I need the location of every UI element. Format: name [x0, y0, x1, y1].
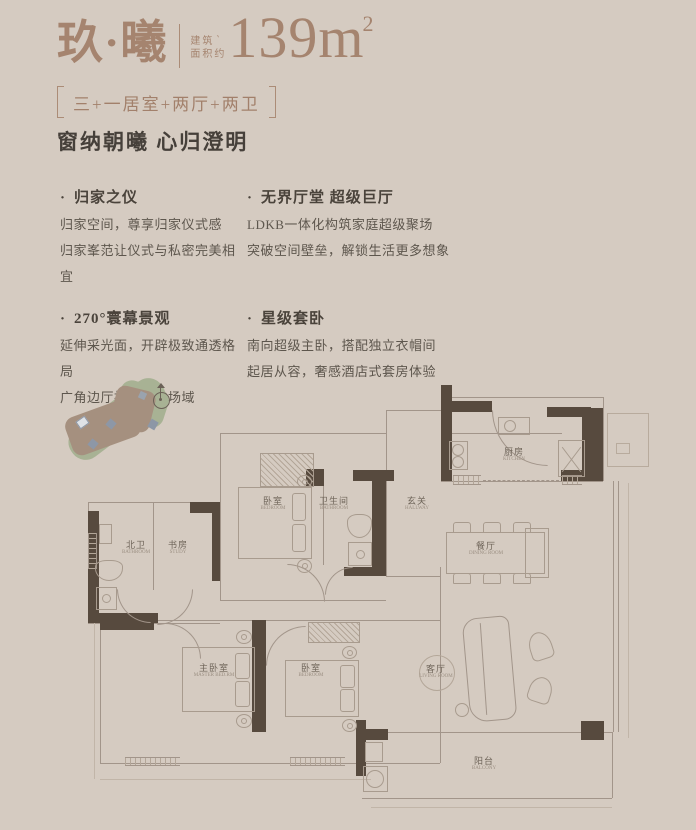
- wall-line: [612, 732, 613, 798]
- bullet-dot: ·: [60, 311, 66, 327]
- pillow: [292, 524, 306, 552]
- bullet-dot: ·: [247, 311, 253, 327]
- floor-plan: 厨房KITCHEN 玄关HALLWAY 卧室BEDROOM 卫生间BATHROO…: [85, 383, 660, 820]
- window-sill: [290, 757, 345, 766]
- armchair: [525, 629, 556, 663]
- title-divider: [179, 24, 180, 68]
- area-label-line2: 面积约: [190, 48, 226, 61]
- window-wall-outer: [628, 483, 629, 738]
- terrace-line: [371, 807, 612, 808]
- dining-chair: [453, 573, 471, 584]
- fridge-icon: [558, 440, 585, 477]
- feature-title: ·270°寰幕景观: [60, 307, 247, 328]
- brand-block: 玖·曦 建筑` 面积约 139m2: [57, 6, 376, 80]
- room-label-study: 书房STUDY: [153, 540, 203, 556]
- room-label-bedroom-top: 卧室BEDROOM: [248, 496, 298, 512]
- wall-dark: [366, 729, 388, 740]
- room-label-living: 客厅LIVING ROOM: [406, 664, 466, 680]
- bracket-left: [57, 86, 64, 118]
- area-superscript: 2: [362, 11, 374, 36]
- feature-line: 起居从容，奢感酒店式套房体验: [247, 359, 450, 385]
- wall-line: [603, 397, 604, 481]
- room-label-hallway: 玄关HALLWAY: [387, 496, 447, 512]
- wall-dark: [452, 401, 492, 412]
- room-label-balcony: 阳台BALCONY: [454, 756, 514, 772]
- dining-chair: [483, 522, 501, 533]
- feature-line: LDKB一体化构筑家庭超级聚场: [247, 212, 450, 238]
- wall-line: [220, 433, 386, 434]
- sink-icon: [96, 587, 117, 610]
- dining-sideboard: [525, 528, 549, 578]
- page-title: 玖·曦: [57, 13, 167, 73]
- room-label-kitchen: 厨房KITCHEN: [484, 447, 544, 463]
- layout-subtitle-text: 三+一居室+两厅+两卫: [64, 90, 269, 115]
- feature-line: 归家峯范让仪式与私密完美相宜: [60, 238, 247, 290]
- terrace-line: [94, 623, 95, 779]
- dining-chair: [483, 573, 501, 584]
- feature-line: 突破空间壁垒，解锁生活更多想象: [247, 238, 450, 264]
- kitchen-opening: [483, 480, 559, 481]
- armchair: [526, 674, 556, 706]
- bullet-dot: ·: [60, 190, 66, 206]
- washer-icon: [366, 770, 384, 788]
- wall-line: [441, 397, 603, 398]
- tick-mark: `: [214, 33, 223, 47]
- feature-title: ·无界厅堂 超级巨厅: [247, 186, 450, 207]
- room-label-bedroom2: 卧室BEDROOM: [281, 663, 341, 679]
- feature-line: 归家空间，尊享归家仪式感: [60, 212, 247, 238]
- area-value: 139m2: [228, 8, 376, 80]
- room-label-bathroom: 卫生间BATHROOM: [309, 496, 359, 512]
- door-arc-bathroom: [325, 567, 353, 595]
- wall-dark: [582, 408, 603, 470]
- nightstand-icon: [342, 646, 357, 659]
- window-wall: [613, 481, 614, 732]
- wall-line: [220, 433, 221, 600]
- area-label-line1: 建筑: [190, 36, 214, 47]
- feature-item-homecoming: ·归家之仪 归家空间，尊享归家仪式感 归家峯范让仪式与私密完美相宜: [60, 186, 247, 290]
- counter-line: [452, 433, 562, 434]
- wall-line: [386, 410, 442, 411]
- feature-title: ·归家之仪: [60, 186, 247, 207]
- bracket-right: [269, 86, 276, 118]
- wall-line: [100, 620, 101, 763]
- balcony-cabinet: [365, 742, 383, 762]
- nightstand-icon: [236, 714, 252, 728]
- ac-unit: [616, 443, 630, 454]
- feature-line: 南向超级主卧，搭配独立衣帽间: [247, 333, 450, 359]
- toilet-icon: [347, 514, 372, 538]
- wall-dark: [581, 721, 604, 740]
- ac-platform: [607, 413, 649, 467]
- nightstand-icon: [297, 559, 312, 573]
- room-label-dining: 餐厅DINING ROOM: [456, 541, 516, 557]
- tagline: 窗纳朝曦 心归澄明: [57, 126, 248, 156]
- room-label-master: 主卧室MASTER BED.RM: [184, 663, 244, 679]
- feature-title: ·星级套卧: [247, 307, 450, 328]
- wall-line: [386, 576, 440, 577]
- terrace-line: [100, 779, 371, 780]
- pillow: [340, 689, 355, 712]
- toilet-icon: [95, 560, 123, 581]
- wall-line: [362, 732, 612, 733]
- nightstand-icon: [236, 630, 252, 644]
- pillow: [340, 665, 355, 688]
- feature-item-hall: ·无界厅堂 超级巨厅 LDKB一体化构筑家庭超级聚场 突破空间壁垒，解锁生活更多…: [247, 186, 450, 290]
- nightstand-icon: [297, 475, 312, 488]
- wall-line: [618, 481, 619, 732]
- wardrobe: [308, 622, 360, 643]
- side-table: [455, 703, 469, 717]
- page-root: 玖·曦 建筑` 面积约 139m2 三+一居室+两厅+两卫 窗纳朝曦 心归澄明 …: [0, 0, 696, 830]
- sink-icon: [348, 542, 372, 566]
- nightstand-icon: [342, 719, 357, 732]
- stove-burner: [452, 444, 464, 456]
- stove-burner: [452, 456, 464, 468]
- wall-line: [362, 798, 612, 799]
- wall-dark: [372, 470, 386, 576]
- dining-chair: [453, 522, 471, 533]
- layout-subtitle: 三+一居室+两厅+两卫: [57, 86, 276, 118]
- wall-line: [386, 410, 387, 576]
- window-sill: [125, 757, 180, 766]
- sofa: [462, 615, 518, 723]
- kitchen-sink-icon: [504, 420, 516, 432]
- bullet-dot: ·: [247, 190, 253, 206]
- window-sill: [453, 475, 481, 485]
- pillow: [235, 681, 250, 707]
- wall-dark: [212, 502, 220, 581]
- area-label: 建筑` 面积约: [190, 34, 226, 61]
